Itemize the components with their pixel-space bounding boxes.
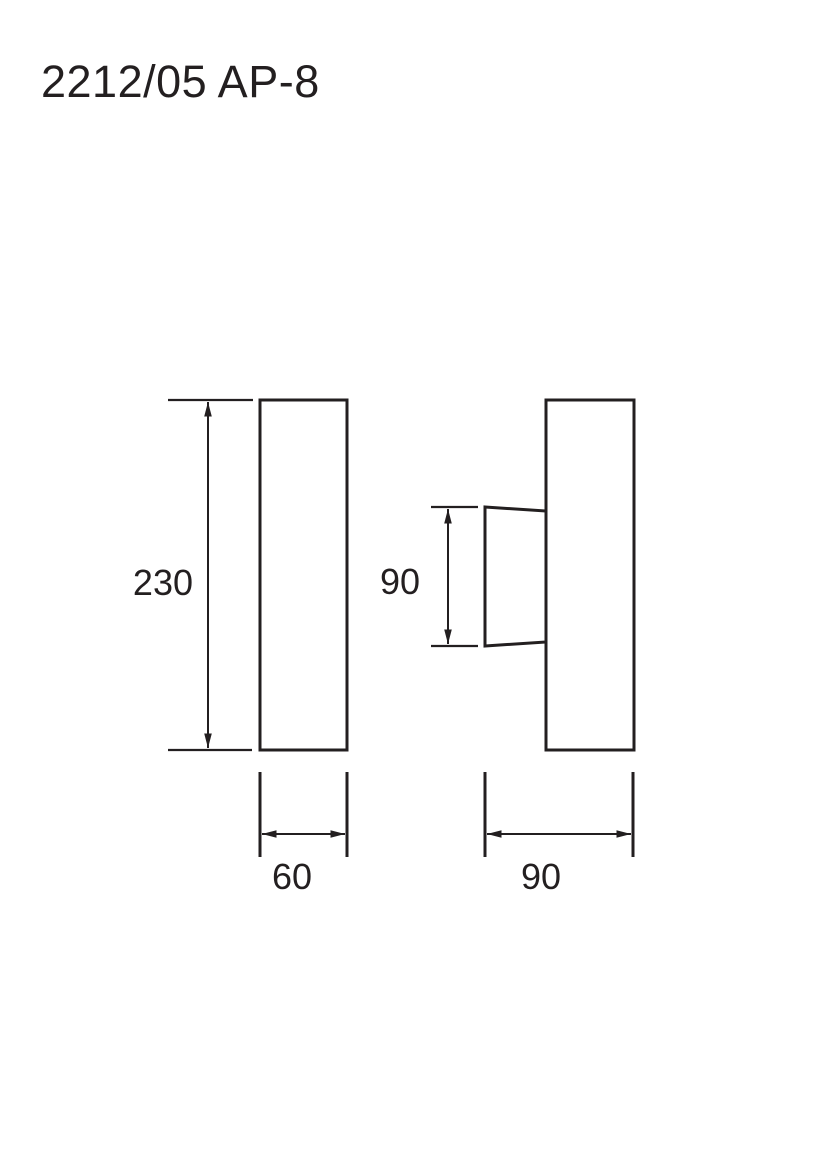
shade-height-dim-label: 90 bbox=[380, 561, 420, 602]
side-view-shade-outline bbox=[485, 507, 546, 646]
technical-drawing: 230 60 90 bbox=[0, 0, 827, 1166]
front-width-dim-label: 60 bbox=[272, 856, 312, 897]
side-view: 90 90 bbox=[380, 400, 634, 897]
front-view: 230 60 bbox=[133, 400, 347, 897]
side-depth-dimension: 90 bbox=[485, 772, 633, 897]
side-depth-dim-label: 90 bbox=[521, 856, 561, 897]
front-width-dimension: 60 bbox=[260, 772, 347, 897]
front-height-dimension: 230 bbox=[133, 400, 253, 750]
front-view-body-outline bbox=[260, 400, 347, 750]
shade-height-dimension: 90 bbox=[380, 507, 478, 646]
front-height-dim-label: 230 bbox=[133, 562, 193, 603]
spec-sheet-page: 2212/05 AP-8 230 60 bbox=[0, 0, 827, 1166]
side-view-body-outline bbox=[546, 400, 634, 750]
